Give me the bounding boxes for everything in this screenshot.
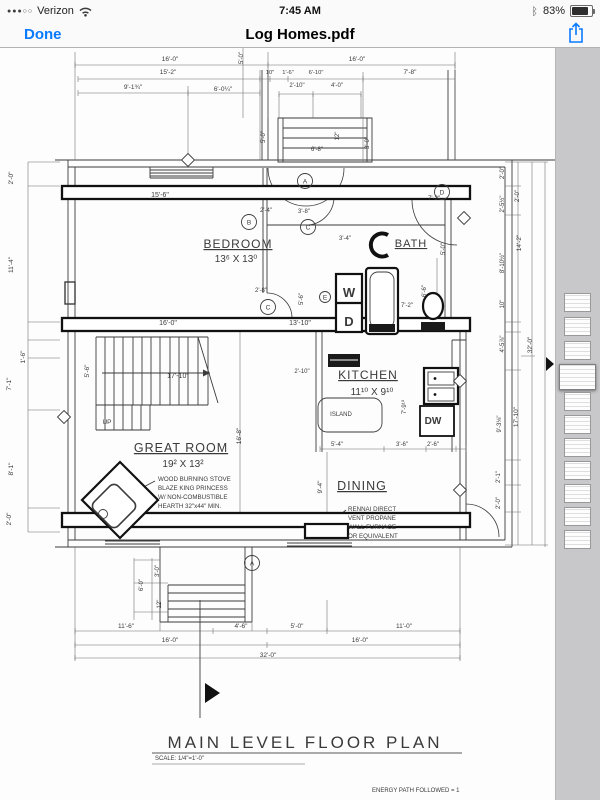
dim-label: 4'-6" xyxy=(235,623,249,630)
dim-label: 6'-0¼" xyxy=(214,86,233,93)
page-thumbnail-1[interactable] xyxy=(564,293,591,312)
furnace-note-line4: OR EQUIVALENT xyxy=(348,533,398,540)
dim-label: 32'-0" xyxy=(260,652,277,659)
dim-label: 2'-10" xyxy=(289,83,304,89)
dim-label: 5'-0" xyxy=(239,52,245,64)
door-window-tag-letter: C xyxy=(306,224,311,231)
dim-label: 32'-0" xyxy=(527,336,534,353)
dim-label: 13'-10" xyxy=(289,320,311,327)
stove-note-line4: HEARTH 32"x44" MIN. xyxy=(158,503,221,510)
dim-label: 17'-10" xyxy=(167,373,189,380)
dim-label: 8'-1" xyxy=(8,462,15,476)
dim-label: 16'-8" xyxy=(236,427,243,444)
drawing-title: MAIN LEVEL FLOOR PLAN xyxy=(168,733,443,752)
battery-icon xyxy=(570,5,593,17)
dim-label: 2'-0" xyxy=(500,167,506,179)
kitchen-sink xyxy=(424,368,458,404)
dim-label: 1'-6" xyxy=(282,70,294,76)
dim-label: 7'-2" xyxy=(428,196,440,202)
furnace-note-line2: VENT PROPANE xyxy=(348,515,396,522)
dim-label: 4'-0" xyxy=(331,83,343,89)
pdf-page-floor-plan[interactable]: 16'-0"16'-0"15'-2"10"1'-6"6'-10"7'-8"9'-… xyxy=(0,0,600,800)
dim-label: 1'-6" xyxy=(20,350,27,364)
page-thumbnail-11[interactable] xyxy=(564,530,591,549)
page-thumbnail-3[interactable] xyxy=(564,341,591,360)
ipad-screen: 16'-0"16'-0"15'-2"10"1'-6"6'-10"7'-8"9'-… xyxy=(0,0,600,800)
page-thumbnail-6[interactable] xyxy=(564,415,591,434)
door-window-tag-letter: B xyxy=(247,219,251,226)
dim-label: 2'-0" xyxy=(8,171,15,185)
wall-furnace xyxy=(305,524,348,538)
door-window-tag-letter: A xyxy=(303,178,308,185)
room-label-great-room: GREAT ROOM xyxy=(134,441,228,455)
page-thumbnail-7[interactable] xyxy=(564,438,591,457)
stove-note-line2: BLAZE KING PRINCESS xyxy=(158,485,228,492)
document-title: Log Homes.pdf xyxy=(0,26,600,43)
room-dims-great-room: 19² X 13² xyxy=(162,459,204,470)
page-thumbnail-5[interactable] xyxy=(564,392,591,411)
toilet-tank xyxy=(421,322,445,331)
navigation-bar: Done Log Homes.pdf xyxy=(0,22,600,48)
share-button[interactable] xyxy=(566,21,586,48)
dim-label: 3'-8" xyxy=(298,209,310,215)
door-window-tag-letter: E xyxy=(323,294,328,301)
dim-label: 5'-6" xyxy=(84,364,91,378)
dim-label: 12" xyxy=(335,132,341,141)
dim-label: 9'-1¾" xyxy=(124,84,143,91)
drawing-scale: SCALE: 1/4"=1'-0" xyxy=(155,756,204,762)
page-thumbnail-9[interactable] xyxy=(564,484,591,503)
dim-label: 2'-6" xyxy=(427,442,439,448)
dim-label: 10" xyxy=(266,70,275,76)
dim-label: 6'-6" xyxy=(422,285,428,297)
dim-label: 14'-2" xyxy=(516,234,523,251)
dim-label: 16'-0" xyxy=(352,637,369,644)
room-label-dining: DINING xyxy=(337,479,387,493)
dim-label: 6'-8" xyxy=(311,147,323,153)
dim-label: 5'-4" xyxy=(331,442,343,448)
island-label: ISLAND xyxy=(330,412,352,418)
dim-label: 10" xyxy=(500,300,506,309)
dim-label: 2'-4" xyxy=(260,208,272,214)
dim-label: 11'-4" xyxy=(8,256,15,273)
thumbnail-sidebar[interactable] xyxy=(555,48,600,800)
room-dims-bedroom: 13⁶ X 13⁰ xyxy=(215,254,258,265)
dim-label: 7'-2" xyxy=(401,303,413,309)
dim-label: 5'-0" xyxy=(291,623,305,630)
dim-label: 5'-6" xyxy=(299,293,305,305)
dim-label: 16'-0" xyxy=(349,56,366,63)
status-bar: ●●●○○ Verizon 7:45 AM ᛒ 83% xyxy=(0,0,600,22)
dim-label: 3'-6" xyxy=(396,442,408,448)
stove-note-line1: WOOD BURNING STOVE xyxy=(158,476,231,483)
dim-label: 16'-0" xyxy=(162,637,179,644)
dim-label: 9'-4" xyxy=(317,480,324,494)
dim-label: 15'-6" xyxy=(151,192,169,199)
page-thumbnail-2[interactable] xyxy=(564,317,591,336)
dim-label: 6'-0" xyxy=(139,579,145,591)
door-window-tag-letter: C xyxy=(266,304,271,311)
clock: 7:45 AM xyxy=(0,5,600,17)
dim-label: 8'-10½" xyxy=(499,253,506,273)
energy-note: ENERGY PATH FOLLOWED = 1 xyxy=(372,788,460,794)
dim-label: 3'-4" xyxy=(339,236,351,242)
dim-label: 16'-0" xyxy=(159,320,177,327)
dim-label: 2'-10" xyxy=(294,369,309,375)
dim-label: 9'-3⅛" xyxy=(497,416,503,433)
dim-label: 7'-1" xyxy=(6,377,13,391)
dim-label: DW xyxy=(425,416,442,427)
dim-label: 2'-0" xyxy=(496,497,502,509)
dim-label: 7'-8" xyxy=(404,69,418,76)
dim-label: 2'-5½" xyxy=(499,196,506,213)
dim-label: 6'-10" xyxy=(309,70,324,76)
page-thumbnail-8[interactable] xyxy=(564,461,591,480)
dim-label: 15'-2" xyxy=(160,69,177,76)
door-window-tag-letter: A xyxy=(250,560,255,567)
dim-label: UP xyxy=(102,419,111,426)
door-window-tag-letter: D xyxy=(440,189,445,196)
dim-label: 4'-5⅞" xyxy=(500,336,506,353)
dim-label: 12" xyxy=(157,600,163,609)
dim-label: W xyxy=(343,285,356,300)
dim-label: 16'-0" xyxy=(162,56,179,63)
dim-label: 2'-0" xyxy=(6,512,13,526)
bluetooth-icon: ᛒ xyxy=(531,5,538,18)
tub-drain xyxy=(369,324,395,332)
share-icon xyxy=(566,21,586,45)
room-label-kitchen: KITCHEN xyxy=(338,368,398,382)
dim-label: 7'-9¹⁰ xyxy=(401,399,408,414)
dim-label: 3'-0" xyxy=(365,137,371,149)
dim-label: D xyxy=(344,314,353,329)
dim-label: 2'-8" xyxy=(255,288,267,294)
dim-label: 17'-10" xyxy=(513,406,520,427)
dim-label: 5'-0" xyxy=(441,243,447,255)
page-thumbnail-10[interactable] xyxy=(564,507,591,526)
battery-percent-label: 83% xyxy=(543,5,565,17)
stove-note-line3: W/ NON-COMBUSTIBLE xyxy=(158,494,227,501)
room-label-bath: BATH xyxy=(395,238,428,250)
room-label-bedroom: BEDROOM xyxy=(203,237,272,251)
dim-label: 2'-0" xyxy=(515,190,521,202)
furnace-note-line3: WALL FURNACE xyxy=(348,524,396,531)
pdf-paper xyxy=(0,48,600,800)
dim-label: 11'-0" xyxy=(396,623,413,630)
furnace-note-line1: RENNAI DIRECT xyxy=(348,506,396,513)
page-thumbnail-4[interactable] xyxy=(559,364,596,390)
dim-label: 11'-6" xyxy=(118,623,135,630)
dim-label: 3'-0" xyxy=(155,565,161,577)
dim-label: 5'-0" xyxy=(261,131,267,143)
dim-label: 2'-1" xyxy=(496,471,502,483)
room-dims-kitchen: 11¹⁰ X 9¹⁰ xyxy=(351,387,394,398)
